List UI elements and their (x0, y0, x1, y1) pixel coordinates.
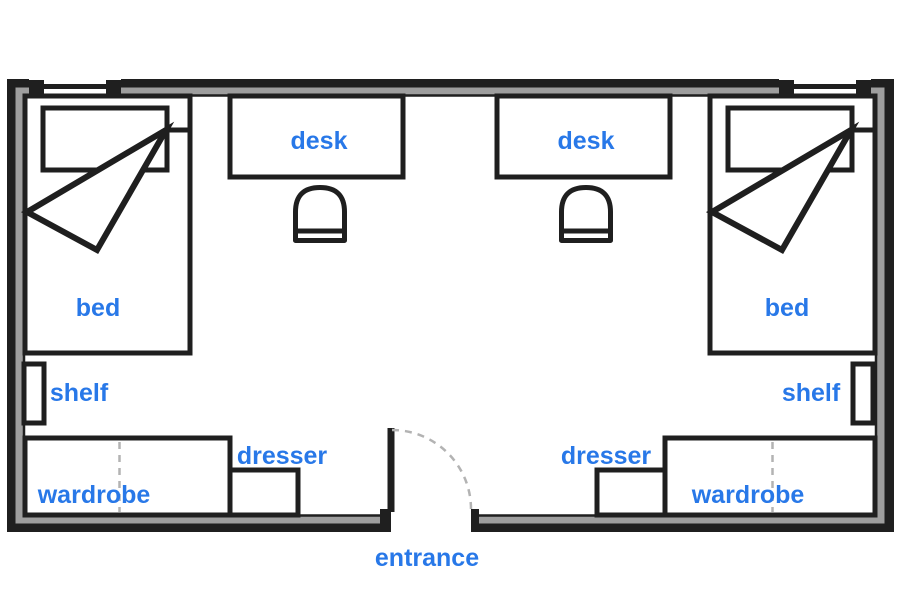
label-wardrobe-left: wardrobe (37, 481, 151, 509)
entrance-jamb-right (471, 509, 479, 532)
entrance-jamb-left (380, 509, 391, 532)
entrance-door (388, 428, 395, 512)
window-frame-bar (44, 84, 106, 89)
dresser-left (230, 470, 298, 515)
label-shelf-right: shelf (782, 379, 841, 407)
shelf-left (24, 364, 44, 423)
chair-left (296, 188, 345, 241)
chair-right (562, 188, 611, 241)
label-bed-right: bed (765, 294, 809, 322)
label-desk-right: desk (558, 127, 615, 155)
dresser-right (597, 470, 665, 515)
shelf-right (853, 364, 873, 423)
floor-plan-canvas: desk desk bed bed shelf shelf dresser dr… (0, 0, 900, 600)
label-shelf-left: shelf (50, 379, 109, 407)
label-bed-left: bed (76, 294, 120, 322)
label-dresser-left: dresser (237, 442, 328, 470)
label-entrance: entrance (375, 544, 479, 572)
entrance-gap (387, 506, 472, 534)
label-wardrobe-right: wardrobe (691, 481, 805, 509)
floor-plan: desk desk bed bed shelf shelf dresser dr… (0, 0, 900, 600)
label-desk-left: desk (291, 127, 348, 155)
label-dresser-right: dresser (561, 442, 652, 470)
